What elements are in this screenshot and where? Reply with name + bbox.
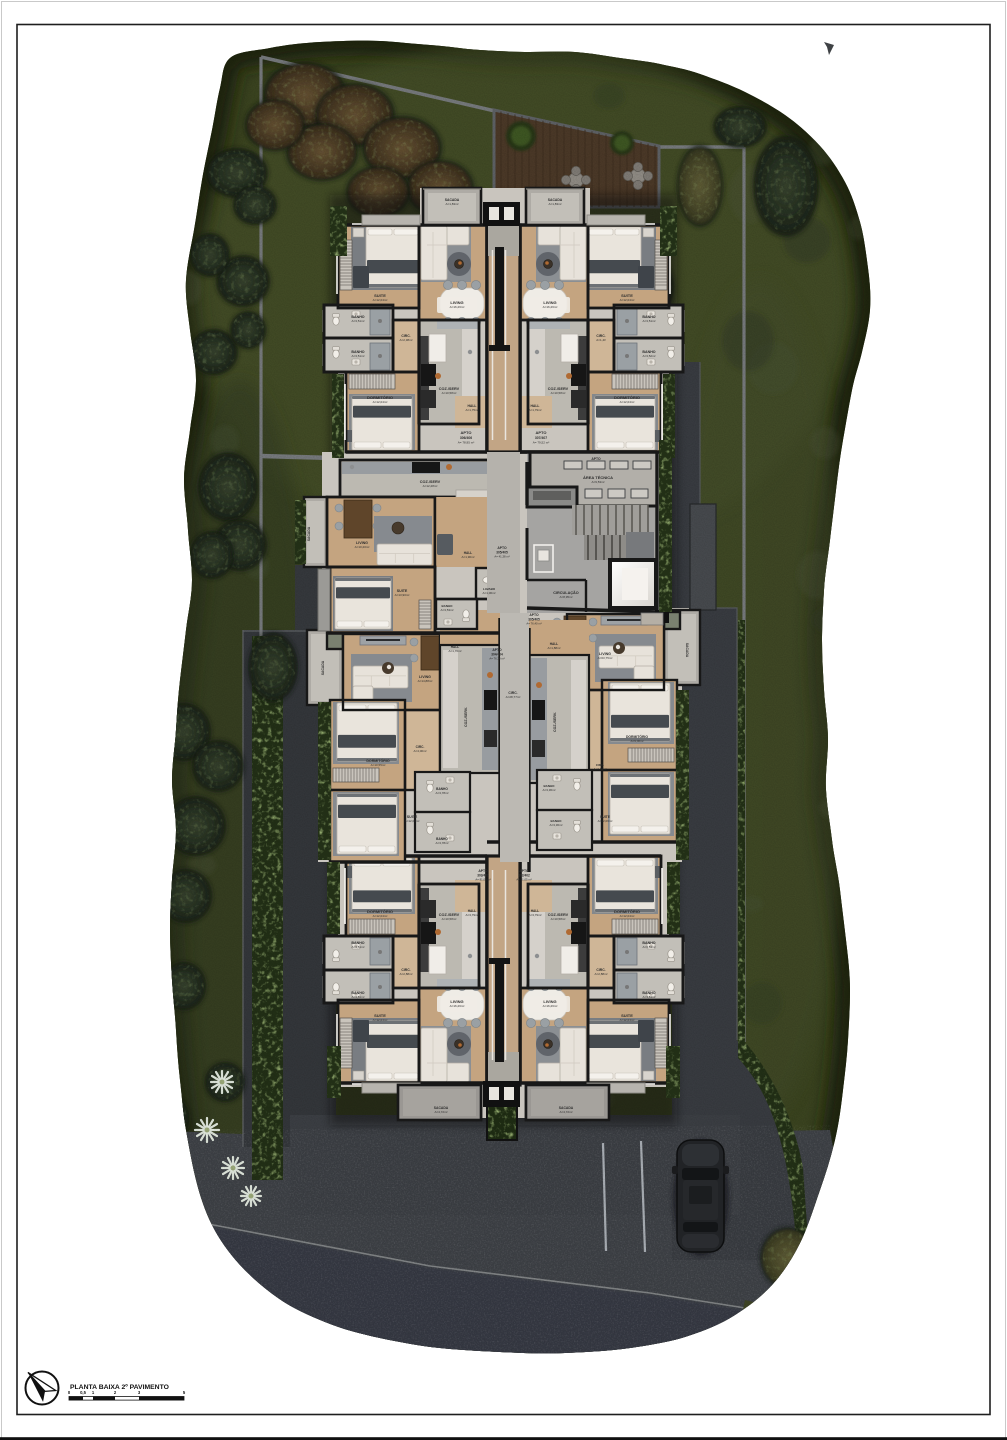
svg-text:A=2,88m²: A=2,88m²: [594, 972, 607, 976]
svg-text:A=3,36m²: A=3,36m²: [542, 788, 555, 792]
svg-text:SACADA: SACADA: [685, 643, 689, 658]
svg-text:A=1,75m²: A=1,75m²: [465, 408, 478, 412]
svg-text:A=12,04m²: A=12,04m²: [620, 1018, 635, 1022]
svg-text:A=4,00m²: A=4,00m²: [413, 749, 426, 753]
svg-text:A=1,88m²: A=1,88m²: [547, 646, 560, 650]
svg-text:A= 81,05 m²: A= 81,05 m²: [516, 878, 531, 882]
svg-text:A=12,04m²: A=12,04m²: [373, 914, 388, 918]
svg-text:SACADA: SACADA: [307, 526, 311, 541]
svg-text:APTO: APTO: [591, 457, 601, 461]
svg-text:A=3,51m²: A=3,51m²: [642, 319, 655, 323]
svg-text:A=12,06m²: A=12,06m²: [405, 819, 420, 823]
svg-text:A= 81,08 m²: A= 81,08 m²: [475, 878, 490, 882]
svg-text:APTO: APTO: [535, 430, 546, 435]
svg-text:A=63,75m²: A=63,75m²: [598, 656, 613, 660]
svg-text:A=8,95m²: A=8,95m²: [559, 595, 572, 599]
svg-text:A=3,51m²: A=3,51m²: [642, 945, 655, 949]
svg-text:A=4,72m²: A=4,72m²: [434, 1110, 447, 1114]
svg-text:A=3,78m²: A=3,78m²: [435, 841, 448, 845]
svg-text:A= 41,38 m²: A= 41,38 m²: [494, 555, 509, 559]
svg-text:A=1,76m²: A=1,76m²: [448, 649, 461, 653]
svg-text:A=3,79m²: A=3,79m²: [528, 913, 541, 917]
svg-text:A=3,51m²: A=3,51m²: [351, 319, 364, 323]
svg-text:APTO: APTO: [529, 613, 539, 617]
svg-text:A=2,38m²: A=2,38m²: [399, 338, 412, 342]
svg-text:A=10,55m²: A=10,55m²: [371, 763, 386, 767]
svg-text:A=2,81m²: A=2,81m²: [593, 767, 606, 771]
svg-text:A=14,88m²: A=14,88m²: [418, 679, 433, 683]
svg-text:A=12,04m²: A=12,04m²: [373, 298, 388, 302]
svg-text:307/407: 307/407: [535, 436, 547, 440]
svg-text:A=9,53m²: A=9,53m²: [591, 480, 604, 484]
svg-text:A=16,26m²: A=16,26m²: [543, 1004, 558, 1008]
svg-text:A=12,04m²: A=12,04m²: [620, 298, 635, 302]
svg-text:A=9,06m²: A=9,06m²: [630, 739, 643, 743]
svg-text:APTO: APTO: [497, 546, 507, 550]
svg-text:A=12,04m²: A=12,04m²: [620, 914, 635, 918]
svg-text:A=16,26m²: A=16,26m²: [450, 305, 465, 309]
svg-text:APTO: APTO: [519, 869, 529, 873]
svg-text:A= 76,34 m²: A= 76,34 m²: [489, 657, 504, 661]
svg-text:A=12,04m²: A=12,04m²: [373, 1018, 388, 1022]
svg-text:A=10,58m²: A=10,58m²: [442, 391, 457, 395]
svg-text:A=13,90m²: A=13,90m²: [395, 593, 410, 597]
svg-text:A=3,36m²: A=3,36m²: [549, 823, 562, 827]
svg-text:COZ./SERV.: COZ./SERV.: [464, 707, 468, 727]
svg-text:A=1,79m²: A=1,79m²: [528, 408, 541, 412]
svg-text:A=3,52m²: A=3,52m²: [642, 354, 655, 358]
svg-text:A=4,72m²: A=4,72m²: [559, 1110, 572, 1114]
svg-text:A=10,58m²: A=10,58m²: [442, 917, 457, 921]
svg-text:A=1,83m²: A=1,83m²: [445, 202, 458, 206]
svg-text:A=12,04m²: A=12,04m²: [373, 400, 388, 404]
svg-text:0,5: 0,5: [80, 1390, 86, 1395]
svg-text:306/406: 306/406: [460, 436, 472, 440]
svg-text:A=1,90m²: A=1,90m²: [461, 555, 474, 559]
svg-text:COZ./SERV.: COZ./SERV.: [553, 712, 557, 732]
svg-text:A=3,53m²: A=3,53m²: [440, 608, 453, 612]
svg-text:A=16,26m²: A=16,26m²: [543, 305, 558, 309]
svg-text:A=16,26m²: A=16,26m²: [450, 1004, 465, 1008]
svg-text:A=28,77m²: A=28,77m²: [506, 695, 521, 699]
svg-text:A=3,51m²: A=3,51m²: [351, 945, 364, 949]
svg-text:A=2,88m²: A=2,88m²: [399, 972, 412, 976]
svg-text:A=1,83m²: A=1,83m²: [548, 202, 561, 206]
svg-text:A=10,58m²: A=10,58m²: [551, 917, 566, 921]
svg-text:A=10,58m²: A=10,58m²: [551, 391, 566, 395]
svg-text:SACADA: SACADA: [321, 660, 325, 675]
svg-text:A= 76,40 m²: A= 76,40 m²: [526, 622, 541, 626]
svg-text:A=12,04m²: A=12,04m²: [620, 400, 635, 404]
svg-text:A=1,06m²: A=1,06m²: [482, 591, 495, 595]
svg-text:A= 79,52 m²: A= 79,52 m²: [533, 441, 549, 445]
svg-text:APTO: APTO: [478, 869, 488, 873]
svg-text:A=3,51m²: A=3,51m²: [642, 995, 655, 999]
svg-text:A=10,20m²: A=10,20m²: [355, 545, 370, 549]
svg-text:A=3,51m²: A=3,51m²: [351, 354, 364, 358]
svg-text:A=3,79m²: A=3,79m²: [465, 913, 478, 917]
svg-text:APTO: APTO: [492, 648, 502, 652]
svg-text:APTO: APTO: [460, 430, 471, 435]
svg-text:A=1,4l²: A=1,4l²: [596, 338, 606, 342]
svg-text:A=12,06m²: A=12,06m²: [598, 819, 613, 823]
svg-text:A=12,28m²: A=12,28m²: [423, 484, 438, 488]
svg-text:A=3,78m²: A=3,78m²: [435, 791, 448, 795]
svg-text:A=3,51m²: A=3,51m²: [351, 995, 364, 999]
svg-text:A= 78,95 m²: A= 78,95 m²: [458, 441, 474, 445]
